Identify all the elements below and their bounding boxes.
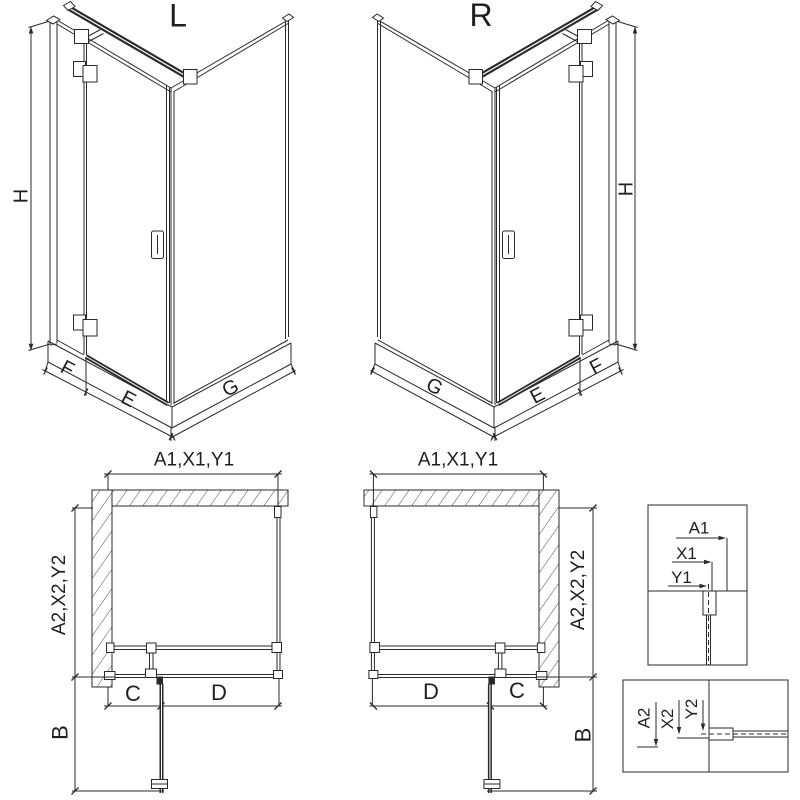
iso-view-left: L H F E G: [10, 0, 295, 441]
wall-hatch-side-right-plan: [539, 490, 559, 687]
dim-label-f-right: F: [586, 354, 607, 379]
plan-left-geometry: [104, 471, 283, 794]
dim-label-a2x2y2-right: A2,X2,Y2: [568, 550, 589, 630]
plan-view-right: A1,X1,Y1 A2,X2,Y2 D C B: [364, 450, 597, 795]
dim-label-a1x1y1-right: A1,X1,Y1: [418, 450, 498, 471]
dim-label-g-left: G: [219, 375, 243, 402]
dim-label-b-right: B: [570, 728, 595, 743]
detail-label-x1: X1: [676, 544, 697, 563]
view-label-left: L: [169, 0, 187, 33]
dim-label-c-right: C: [509, 678, 525, 703]
plan-right-geometry: [369, 471, 548, 794]
detail-label-y1: Y1: [671, 568, 692, 587]
plan-view-left: A1,X1,Y1 A2,X2,Y2 C D B: [47, 450, 288, 795]
detail-top-fixing: A1 X1 Y1: [648, 505, 747, 665]
drawing-canvas: L H F E G R H F E G A1,X1,Y1 A2,X2,Y2 C …: [0, 0, 800, 800]
iso-view-right: R H F E G: [371, 0, 638, 441]
dim-label-a1x1y1-left: A1,X1,Y1: [154, 450, 234, 471]
wall-hatch-top-left-plan: [92, 490, 288, 506]
dim-label-f-left: F: [57, 356, 78, 381]
detail-label-a2: A2: [634, 708, 653, 729]
shower-enclosure-technical-drawing: L H F E G R H F E G A1,X1,Y1 A2,X2,Y2 C …: [0, 0, 800, 800]
dim-label-d-left: D: [211, 680, 227, 705]
view-label-right: R: [469, 0, 492, 33]
dim-label-a2x2y2-left: A2,X2,Y2: [49, 555, 70, 635]
wall-hatch-top-right-plan: [364, 490, 559, 506]
dim-label-g-right: G: [422, 374, 446, 401]
dim-label-e-right: E: [527, 383, 549, 409]
wall-hatch-side-left-plan: [92, 490, 112, 687]
detail-label-x2: X2: [658, 709, 677, 730]
wall-profile-section: [703, 591, 716, 615]
dim-label-b-left: B: [47, 725, 72, 740]
dim-label-d-right: D: [423, 679, 439, 704]
detail-bottom-fixing: A2 X2 Y2: [623, 680, 788, 772]
dim-label-c-left: C: [125, 681, 141, 706]
detail-label-a1: A1: [689, 518, 710, 537]
dim-label-h-right: H: [615, 182, 637, 196]
detail-label-y2: Y2: [682, 699, 701, 720]
dim-label-h-left: H: [10, 189, 32, 203]
